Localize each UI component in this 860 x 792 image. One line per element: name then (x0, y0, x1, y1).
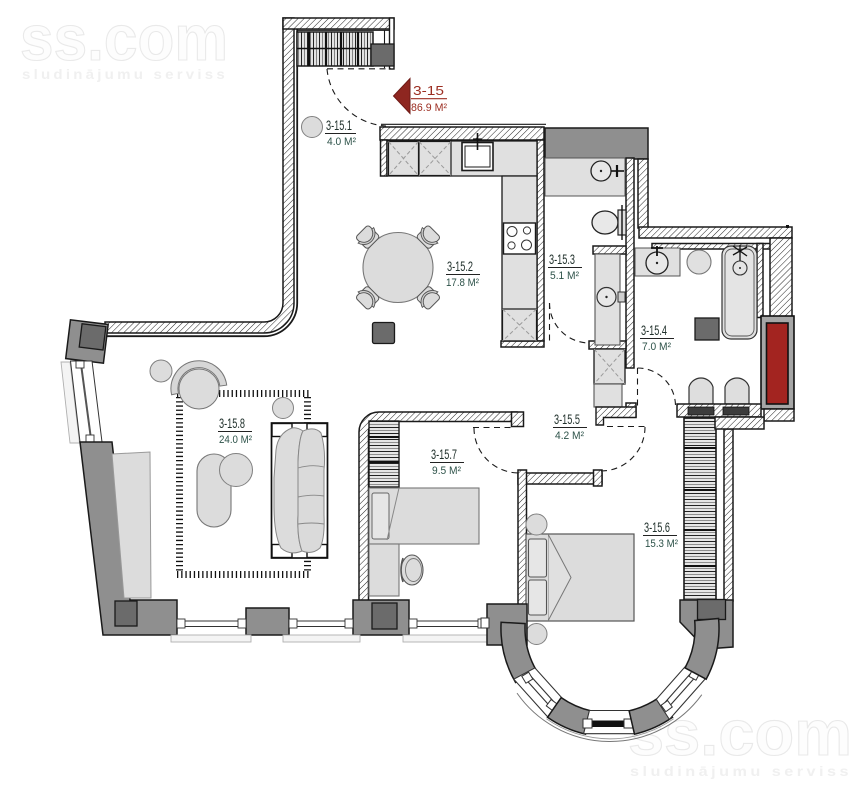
svg-text:86.9 M²: 86.9 M² (411, 102, 447, 114)
svg-text:15.3 M²: 15.3 M² (645, 538, 678, 550)
svg-text:24.0 M²: 24.0 M² (219, 434, 252, 446)
svg-text:3-15.1: 3-15.1 (326, 118, 352, 133)
svg-text:3-15.8: 3-15.8 (219, 416, 245, 431)
svg-text:sludinājumu serviss: sludinājumu serviss (630, 763, 852, 779)
svg-text:ss.com: ss.com (20, 2, 228, 74)
svg-text:4.0 M²: 4.0 M² (327, 136, 356, 148)
svg-text:7.0 M²: 7.0 M² (642, 341, 671, 353)
svg-text:5.1 M²: 5.1 M² (550, 270, 579, 282)
svg-text:9.5 M²: 9.5 M² (432, 465, 461, 477)
svg-text:4.2 M²: 4.2 M² (555, 430, 584, 442)
svg-text:3-15.3: 3-15.3 (549, 252, 575, 267)
svg-text:3-15.6: 3-15.6 (644, 520, 670, 535)
svg-text:3-15.7: 3-15.7 (431, 447, 457, 462)
svg-text:3-15.5: 3-15.5 (554, 412, 580, 427)
svg-text:3-15.4: 3-15.4 (641, 323, 667, 338)
svg-text:sludinājumu serviss: sludinājumu serviss (22, 66, 228, 82)
svg-text:3-15.2: 3-15.2 (447, 259, 473, 274)
svg-text:17.8 M²: 17.8 M² (446, 277, 479, 289)
svg-text:3-15: 3-15 (413, 83, 444, 98)
